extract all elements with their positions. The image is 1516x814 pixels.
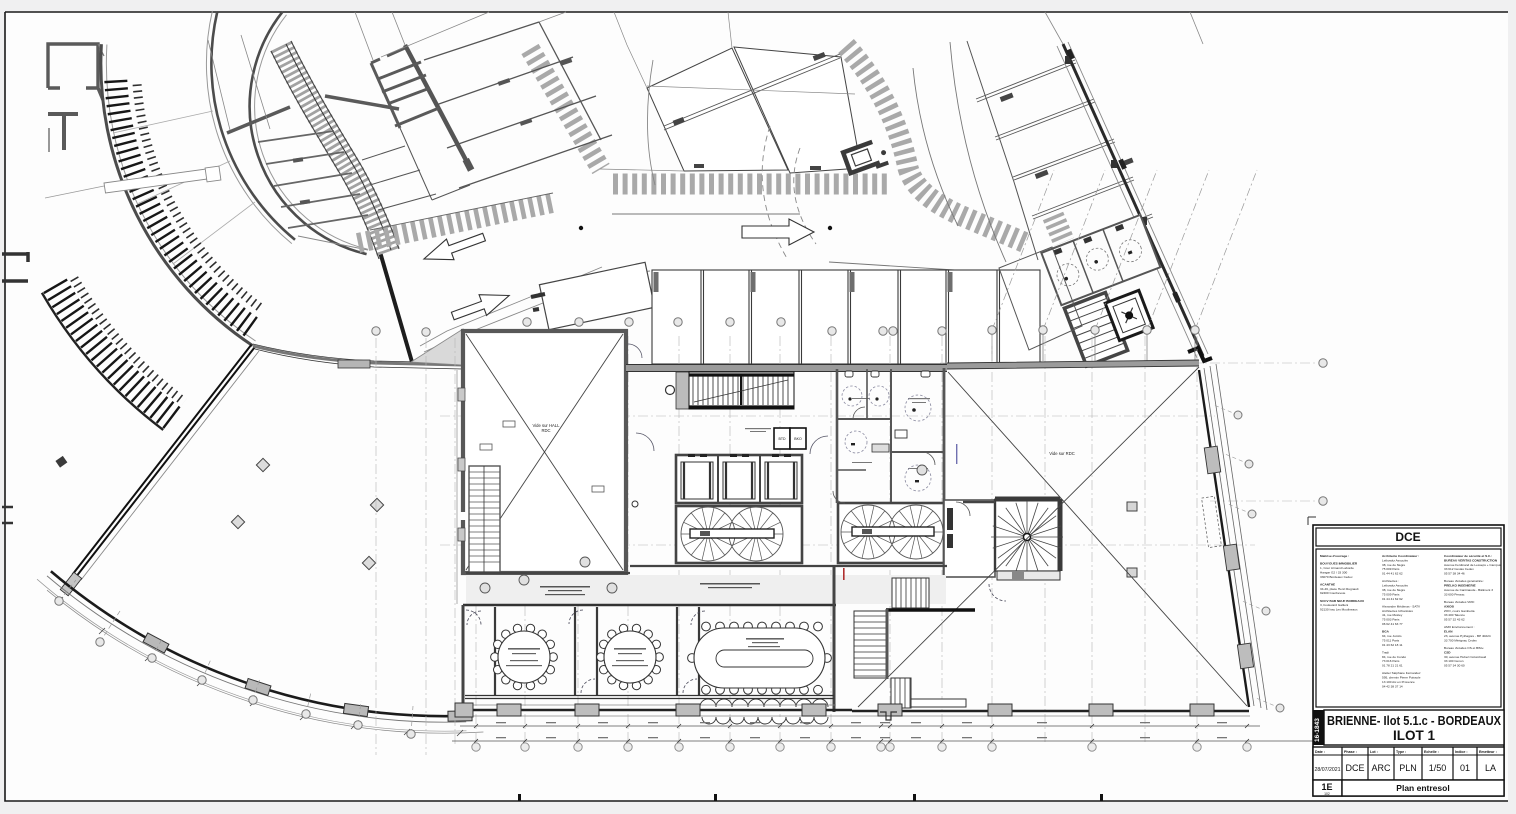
- svg-text:3, boulevard Gallieni: 3, boulevard Gallieni: [1320, 603, 1349, 607]
- svg-text:102: 102: [1324, 792, 1330, 796]
- svg-text:Leibowitz Associés: Leibowitz Associés: [1382, 584, 1408, 588]
- svg-text:75 003 Paris: 75 003 Paris: [1382, 618, 1400, 622]
- svg-text:Echelle :: Echelle :: [1424, 750, 1439, 754]
- svg-text:41, rue Mésley: 41, rue Mésley: [1382, 613, 1403, 617]
- svg-text:Hangar G2 / 33 300: Hangar G2 / 33 300: [1320, 570, 1347, 574]
- svg-text:33070 Bordeaux Cedex: 33070 Bordeaux Cedex: [1320, 575, 1353, 579]
- svg-text:ACANTHE: ACANTHE: [1320, 582, 1335, 586]
- svg-text:Avenue de Cantinaude - Bâtimen: Avenue de Cantinaude - Bâtiment 3: [1444, 588, 1493, 592]
- svg-text:1E: 1E: [1321, 782, 1332, 792]
- svg-text:38, rue de Nègre: 38, rue de Nègre: [1382, 563, 1405, 567]
- svg-text:13 100 Aix en Provence: 13 100 Aix en Provence: [1382, 680, 1415, 684]
- svg-text:Vide sur RDC: Vide sur RDC: [1049, 451, 1075, 456]
- svg-text:1/50: 1/50: [1429, 763, 1447, 773]
- svg-text:LA: LA: [1485, 763, 1496, 773]
- svg-text:16-1843: 16-1843: [1314, 718, 1321, 742]
- svg-text:06 62 41 63 77: 06 62 41 63 77: [1382, 622, 1403, 626]
- svg-text:ARC: ARC: [1371, 763, 1391, 773]
- svg-text:23, avenue Pythagore - BP 4022: 23, avenue Pythagore - BP 40224: [1444, 634, 1491, 638]
- svg-text:84, rue de Condé: 84, rue de Condé: [1382, 655, 1406, 659]
- svg-text:94, rue Jumilo: 94, rue Jumilo: [1382, 634, 1402, 638]
- svg-text:Architecte Coordinateur :: Architecte Coordinateur :: [1382, 554, 1419, 558]
- svg-text:1, Cour Armand Laborde: 1, Cour Armand Laborde: [1320, 566, 1354, 570]
- svg-text:Type :: Type :: [1396, 750, 1406, 754]
- svg-text:DCE: DCE: [1345, 763, 1364, 773]
- svg-text:Phase :: Phase :: [1344, 750, 1357, 754]
- svg-text:PLN: PLN: [1399, 763, 1417, 773]
- svg-text:Coordinateur de sécurité et S.: Coordinateur de sécurité et S.C.:: [1444, 554, 1492, 558]
- svg-text:AMO Environnement :: AMO Environnement :: [1444, 625, 1475, 629]
- svg-text:01: 01: [1460, 763, 1470, 773]
- svg-text:75 009 Paris: 75 009 Paris: [1382, 592, 1400, 596]
- svg-text:92400 Courbevoie: 92400 Courbevoie: [1320, 591, 1346, 595]
- svg-text:Bureau d'études OS et BIM+:: Bureau d'études OS et BIM+:: [1444, 646, 1484, 650]
- svg-text:01 43 62 18 11: 01 43 62 18 11: [1382, 643, 1403, 647]
- svg-text:04 42 38 37 14: 04 42 38 37 14: [1382, 684, 1403, 688]
- svg-text:ILOT 1: ILOT 1: [1393, 728, 1435, 743]
- svg-text:33 100 Cenon: 33 100 Cenon: [1444, 659, 1464, 663]
- svg-text:RDC: RDC: [541, 428, 550, 433]
- svg-text:BTD: BTD: [779, 437, 786, 441]
- svg-text:05 57 38 34 46: 05 57 38 34 46: [1444, 572, 1465, 576]
- svg-text:ELAN: ELAN: [1444, 630, 1453, 634]
- svg-text:Maitrise d'ouvrage :: Maitrise d'ouvrage :: [1320, 554, 1349, 558]
- svg-text:Lot :: Lot :: [1370, 750, 1378, 754]
- svg-text:Avenue Ferdinand de Lesseps +: Avenue Ferdinand de Lesseps + Campus: [1444, 563, 1501, 567]
- svg-text:05 57 32 43 62: 05 57 32 43 62: [1444, 618, 1465, 622]
- svg-text:SCCV BAB NEUF BORDEAUX: SCCV BAB NEUF BORDEAUX: [1320, 599, 1365, 603]
- svg-text:33 700 Mérignac Cedex: 33 700 Mérignac Cedex: [1444, 638, 1477, 642]
- svg-text:Bureau d'études VRD:: Bureau d'études VRD:: [1444, 600, 1475, 604]
- svg-text:Architectes Urbanistes: Architectes Urbanistes: [1382, 609, 1413, 613]
- svg-text:73 016 Paris: 73 016 Paris: [1382, 659, 1400, 663]
- svg-text:Plan entresol: Plan entresol: [1396, 783, 1449, 793]
- svg-text:01 78 21 21 61: 01 78 21 21 61: [1382, 664, 1403, 668]
- svg-text:Leibowitz Associés: Leibowitz Associés: [1382, 558, 1408, 562]
- svg-text:BRIENNE- Ilot 5.1.c - BORDEAUX: BRIENNE- Ilot 5.1.c - BORDEAUX: [1327, 713, 1501, 728]
- svg-text:Emetteur :: Emetteur :: [1479, 750, 1497, 754]
- svg-text:BGA: BGA: [1382, 630, 1390, 634]
- svg-text:33 400 Talence: 33 400 Talence: [1444, 613, 1465, 617]
- svg-text:28/07/2021: 28/07/2021: [1315, 767, 1341, 773]
- svg-text:BOUYGUES IMMOBILIER: BOUYGUES IMMOBILIER: [1320, 562, 1358, 566]
- svg-text:Bureau d'études génératrice:: Bureau d'études génératrice:: [1444, 579, 1484, 583]
- svg-text:33 600 Pessac: 33 600 Pessac: [1444, 592, 1465, 596]
- svg-text:75 009 Paris: 75 009 Paris: [1382, 567, 1400, 571]
- svg-text:01 44 41 62 62: 01 44 41 62 62: [1382, 597, 1403, 601]
- svg-text:Tradi: Tradi: [1382, 650, 1389, 654]
- svg-text:CSD: CSD: [1444, 650, 1451, 654]
- svg-text:33 612 Cestas Cedex: 33 612 Cestas Cedex: [1444, 567, 1474, 571]
- svg-text:75 011 Paris: 75 011 Paris: [1382, 638, 1400, 642]
- svg-text:BKO: BKO: [794, 437, 802, 441]
- svg-text:BUREAU VERITAS CONSTRUCTION: BUREAU VERITAS CONSTRUCTION: [1444, 558, 1498, 562]
- svg-text:92130 Issy Les Moulineaux: 92130 Issy Les Moulineaux: [1320, 608, 1358, 612]
- svg-text:Alexandre Médénas - SATV: Alexandre Médénas - SATV: [1382, 604, 1421, 608]
- svg-text:05 57 34 30 60: 05 57 34 30 60: [1444, 664, 1465, 668]
- svg-text:38, rue de Nègre: 38, rue de Nègre: [1382, 588, 1405, 592]
- svg-text:34-46, place Henri Regnault: 34-46, place Henri Regnault: [1320, 587, 1359, 591]
- svg-text:PRELKO INGENIERIE: PRELKO INGENIERIE: [1444, 584, 1476, 588]
- svg-text:AXIOB: AXIOB: [1444, 604, 1455, 608]
- svg-text:30, avenue Hubert Colombaud: 30, avenue Hubert Colombaud: [1444, 655, 1486, 659]
- svg-text:DCE: DCE: [1395, 530, 1420, 544]
- svg-text:01 44 41 62 62: 01 44 41 62 62: [1382, 572, 1403, 576]
- svg-text:Atelier Stéphane Fernandez: Atelier Stéphane Fernandez: [1382, 671, 1421, 675]
- svg-text:ZOO, cours Gambetta: ZOO, cours Gambetta: [1444, 609, 1475, 613]
- svg-text:Architectes :: Architectes :: [1382, 579, 1399, 583]
- svg-text:595, chemin Pierre Puissole: 595, chemin Pierre Puissole: [1382, 676, 1421, 680]
- svg-text:Indice :: Indice :: [1455, 750, 1468, 754]
- svg-text:Date :: Date :: [1315, 750, 1325, 754]
